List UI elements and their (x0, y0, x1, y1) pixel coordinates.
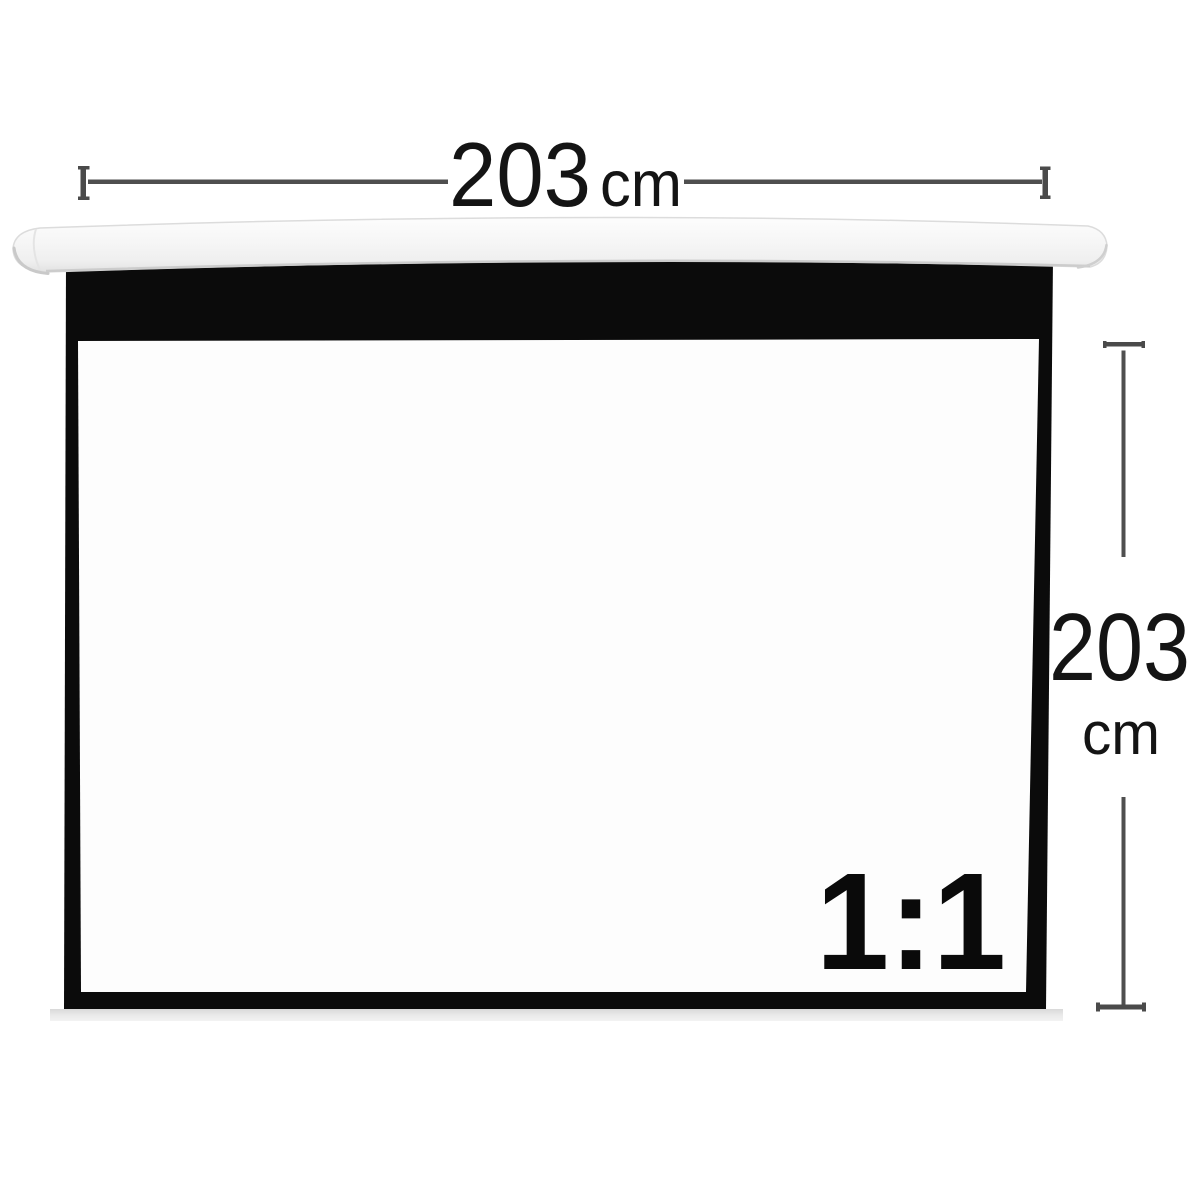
svg-text:203: 203 (449, 125, 591, 226)
svg-text:cm: cm (600, 147, 682, 220)
svg-text:1:1: 1:1 (816, 845, 1006, 999)
svg-text:203: 203 (1049, 594, 1190, 701)
svg-text:cm: cm (1082, 700, 1160, 767)
